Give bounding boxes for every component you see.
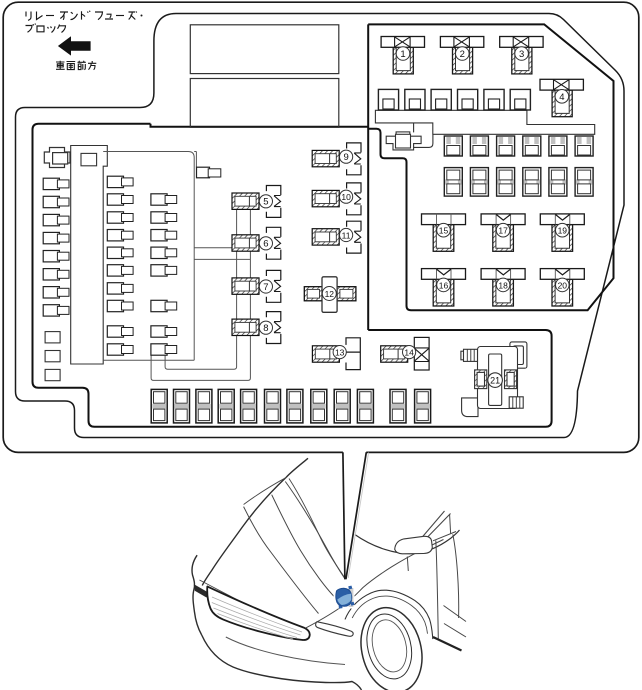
svg-text:19: 19 [558, 226, 568, 236]
svg-text:21: 21 [490, 376, 500, 386]
svg-text:9: 9 [343, 152, 348, 163]
svg-text:16: 16 [439, 280, 449, 290]
svg-text:8: 8 [263, 323, 268, 334]
svg-text:15: 15 [439, 226, 449, 236]
svg-text:20: 20 [558, 280, 568, 290]
svg-text:3: 3 [519, 49, 524, 60]
svg-text:13: 13 [335, 348, 345, 358]
svg-text:10: 10 [341, 192, 351, 202]
svg-text:5: 5 [263, 197, 268, 208]
svg-text:12: 12 [325, 289, 335, 299]
svg-text:2: 2 [460, 49, 465, 60]
svg-text:1: 1 [400, 49, 405, 60]
svg-text:7: 7 [263, 282, 268, 293]
svg-text:4: 4 [559, 92, 564, 103]
svg-text:17: 17 [498, 226, 508, 236]
svg-text:11: 11 [342, 230, 351, 240]
svg-text:6: 6 [263, 239, 268, 250]
svg-text:14: 14 [404, 348, 414, 358]
svg-text:18: 18 [498, 280, 508, 290]
